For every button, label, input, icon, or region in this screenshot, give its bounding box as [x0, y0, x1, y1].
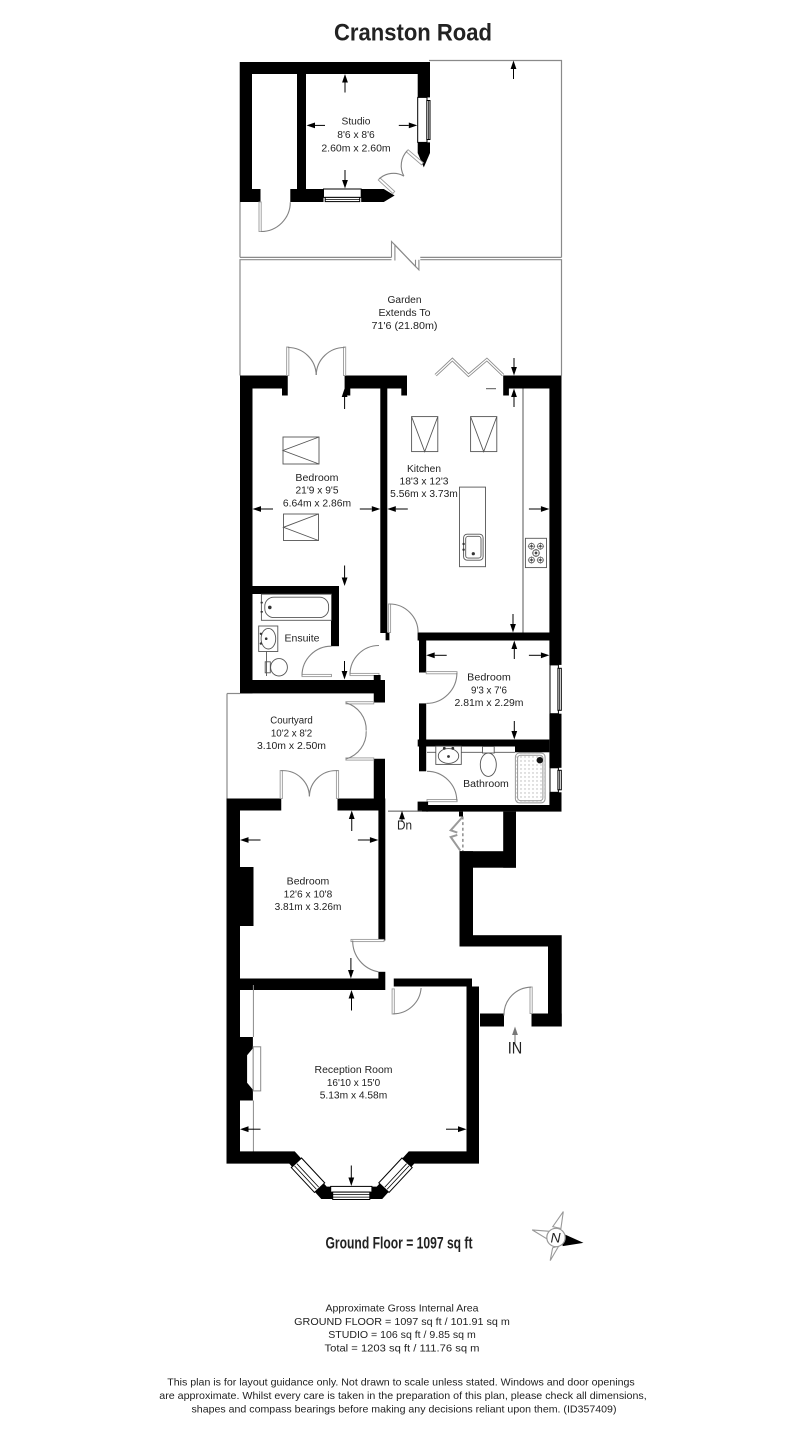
svg-text:Studio: Studio [342, 117, 371, 128]
svg-text:12'6 x 10'8: 12'6 x 10'8 [284, 889, 333, 900]
svg-text:Kitchen: Kitchen [407, 464, 441, 475]
svg-text:16'10 x 15'0: 16'10 x 15'0 [327, 1078, 381, 1089]
svg-text:Total = 1203 sq ft / 111.76 sq: Total = 1203 sq ft / 111.76 sq m [325, 1342, 480, 1354]
svg-text:Reception Room: Reception Room [315, 1065, 393, 1076]
svg-text:N: N [550, 1229, 561, 1245]
svg-text:Bathroom: Bathroom [463, 779, 509, 790]
svg-text:are approximate. Whilst every: are approximate. Whilst every care is ta… [159, 1390, 647, 1402]
svg-text:5.56m x 3.73m: 5.56m x 3.73m [390, 489, 458, 500]
svg-text:Bedroom: Bedroom [295, 473, 338, 484]
svg-text:8'6 x 8'6: 8'6 x 8'6 [337, 130, 375, 141]
svg-text:Courtyard: Courtyard [270, 716, 313, 727]
svg-text:Dn: Dn [397, 819, 412, 833]
svg-text:Ensuite: Ensuite [285, 634, 320, 645]
svg-text:GROUND FLOOR = 1097 sq ft / 10: GROUND FLOOR = 1097 sq ft / 101.91 sq m [294, 1316, 510, 1328]
svg-text:Cranston Road: Cranston Road [334, 20, 492, 47]
svg-text:Approximate Gross Internal Are: Approximate Gross Internal Area [326, 1303, 479, 1315]
svg-text:Extends To: Extends To [379, 308, 431, 319]
svg-text:9'3 x 7'6: 9'3 x 7'6 [471, 685, 507, 696]
svg-text:5.13m x 4.58m: 5.13m x 4.58m [320, 1091, 388, 1102]
svg-text:21'9 x 9'5: 21'9 x 9'5 [296, 486, 339, 497]
svg-text:Ground Floor = 1097 sq ft: Ground Floor = 1097 sq ft [326, 1233, 473, 1252]
svg-text:18'3 x 12'3: 18'3 x 12'3 [400, 477, 449, 488]
svg-text:shapes and compass bearings be: shapes and compass bearings before makin… [192, 1404, 617, 1416]
svg-text:2.60m x 2.60m: 2.60m x 2.60m [321, 143, 390, 154]
svg-text:Bedroom: Bedroom [467, 673, 511, 684]
svg-text:Garden: Garden [388, 295, 422, 306]
svg-text:10'2 x 8'2: 10'2 x 8'2 [271, 728, 313, 739]
svg-text:IN: IN [508, 1040, 523, 1058]
svg-text:2.81m x 2.29m: 2.81m x 2.29m [455, 698, 524, 709]
svg-text:Bedroom: Bedroom [287, 877, 330, 888]
svg-text:71'6 (21.80m): 71'6 (21.80m) [372, 321, 438, 332]
svg-text:3.10m x 2.50m: 3.10m x 2.50m [257, 741, 326, 752]
svg-text:3.81m x 3.26m: 3.81m x 3.26m [275, 902, 342, 913]
svg-text:6.64m x 2.86m: 6.64m x 2.86m [283, 498, 351, 509]
svg-text:STUDIO = 106 sq ft / 9.85 sq m: STUDIO = 106 sq ft / 9.85 sq m [328, 1329, 476, 1341]
svg-text:This plan is for layout guidan: This plan is for layout guidance only. N… [167, 1377, 635, 1389]
